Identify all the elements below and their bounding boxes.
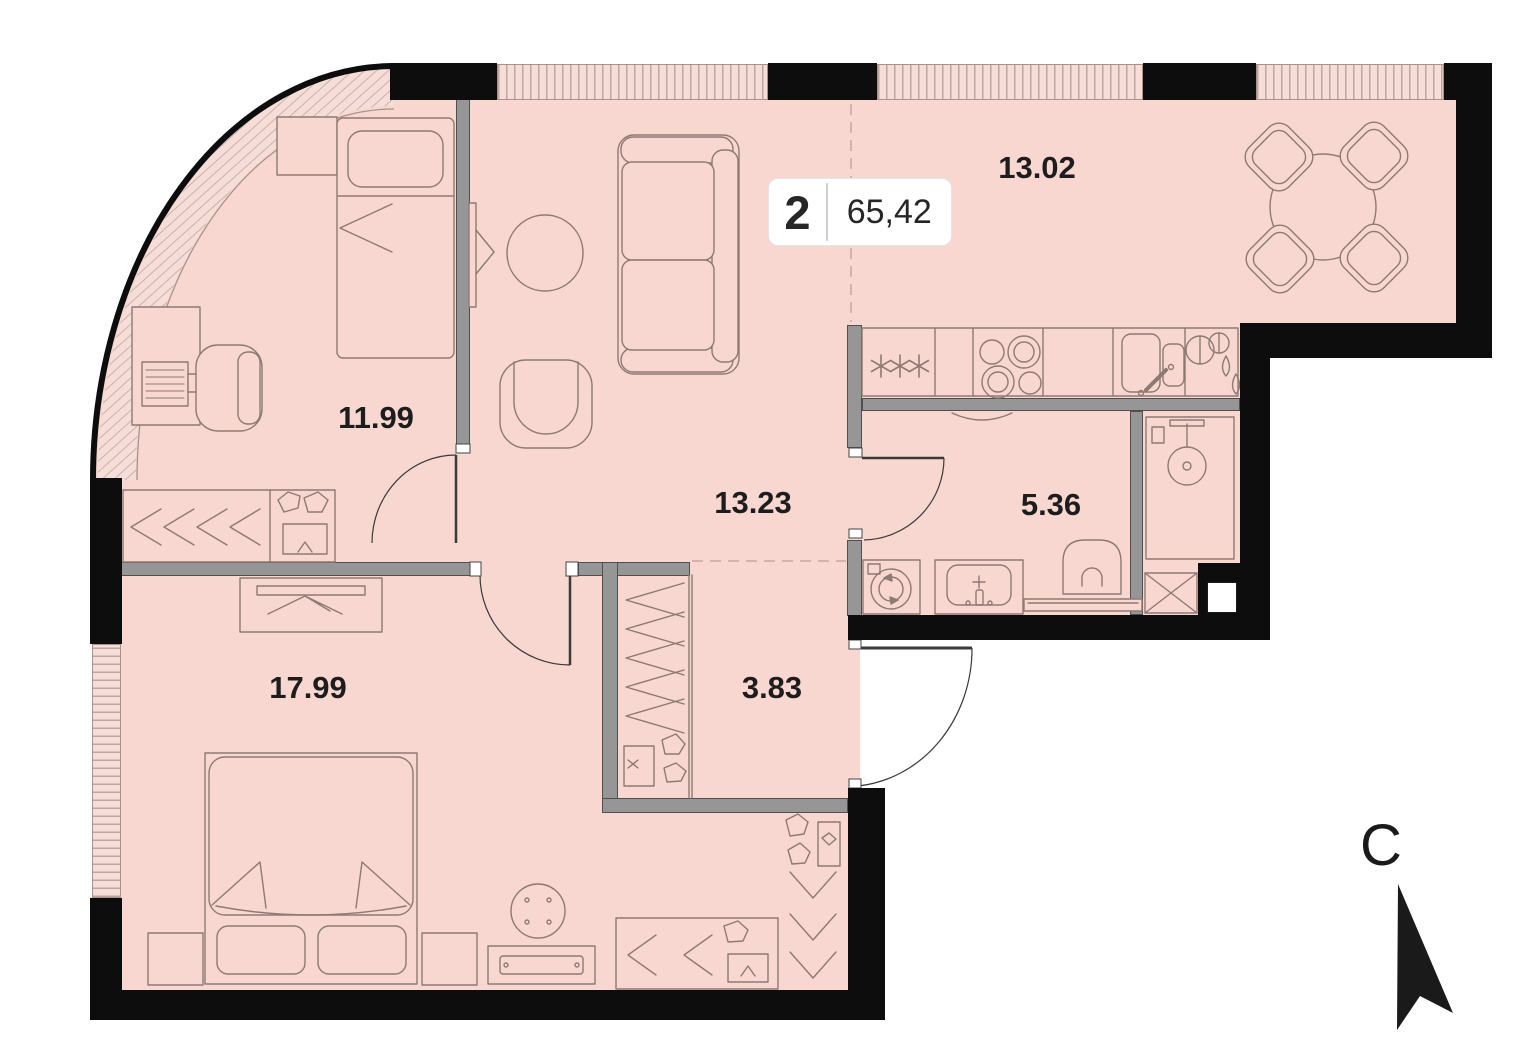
coffee-table <box>507 215 583 291</box>
single-bed <box>337 118 454 358</box>
apartment-info-badge: 2 65,42 <box>768 178 952 246</box>
wall-right-dining <box>1456 63 1492 358</box>
shaft-opening <box>1207 582 1237 613</box>
room-label-kitchen-dining: 13.02 <box>998 150 1076 186</box>
toilet-icon <box>1063 540 1121 594</box>
jamb <box>566 562 578 576</box>
kitchen-sink-icon <box>1122 334 1184 396</box>
nightstand-right <box>422 933 477 985</box>
door-bathroom <box>862 458 944 540</box>
room-label-bedroom-master: 17.99 <box>269 670 347 706</box>
desk-chair <box>196 345 262 431</box>
closet-hall-wardrobe <box>624 575 692 798</box>
wall-left-upper <box>90 478 122 644</box>
wall-top-2 <box>768 63 877 100</box>
jamb <box>849 779 861 788</box>
jamb <box>470 562 481 576</box>
floor-plan: 13.02 11.99 13.23 5.36 17.99 3.83 2 65,4… <box>0 0 1515 1057</box>
armchair <box>500 360 592 448</box>
total-area: 65,42 <box>828 179 952 245</box>
room-label-bedroom-secondary: 11.99 <box>338 400 414 436</box>
door-bedroom-secondary <box>372 455 456 543</box>
rooms-count: 2 <box>769 179 826 245</box>
nightstand-left <box>148 933 203 985</box>
wardrobe-bedroom2 <box>123 490 335 562</box>
dish-rack-icon <box>1186 333 1240 394</box>
closet-entry-items <box>786 814 840 978</box>
jamb <box>849 640 861 649</box>
shower-icon <box>1146 417 1234 559</box>
wall-entry-right <box>848 788 885 1020</box>
jamb <box>849 448 862 457</box>
room-label-bathroom: 5.36 <box>1021 487 1081 523</box>
shower-threshold <box>1024 599 1142 611</box>
bench-dresser <box>488 946 595 984</box>
towel-rail <box>952 413 1012 420</box>
washing-machine-icon <box>863 560 920 614</box>
tv-console <box>240 578 382 632</box>
double-bed <box>205 753 417 984</box>
stove-icon <box>980 336 1041 398</box>
wall-bath-bottom <box>848 615 1270 640</box>
wall-bottom <box>90 990 885 1020</box>
compass-north-label: С <box>1352 812 1410 879</box>
wall-top-1 <box>390 63 497 100</box>
wall-top-3 <box>1143 63 1256 100</box>
sofa <box>618 135 739 374</box>
bathroom-sink-icon <box>935 560 1023 614</box>
plan-vector-layer <box>0 0 1515 1057</box>
side-table <box>511 884 565 938</box>
jamb <box>456 444 470 453</box>
desk <box>132 307 201 425</box>
bedside-table <box>277 117 337 175</box>
tv-unit <box>469 203 494 307</box>
north-arrow-icon <box>1397 884 1453 1030</box>
room-label-closet-hall: 3.83 <box>742 670 802 706</box>
wall-under-dining <box>1240 323 1492 358</box>
fridge-icon <box>872 355 929 377</box>
room-label-hallway: 13.23 <box>714 485 792 521</box>
wall-left-lower <box>90 898 122 1020</box>
door-entrance <box>858 648 972 786</box>
jamb <box>849 529 862 538</box>
door-bedroom-master <box>480 575 570 665</box>
duct-shaft-icon <box>1145 573 1197 613</box>
wardrobe-bedroom-master <box>616 918 778 989</box>
